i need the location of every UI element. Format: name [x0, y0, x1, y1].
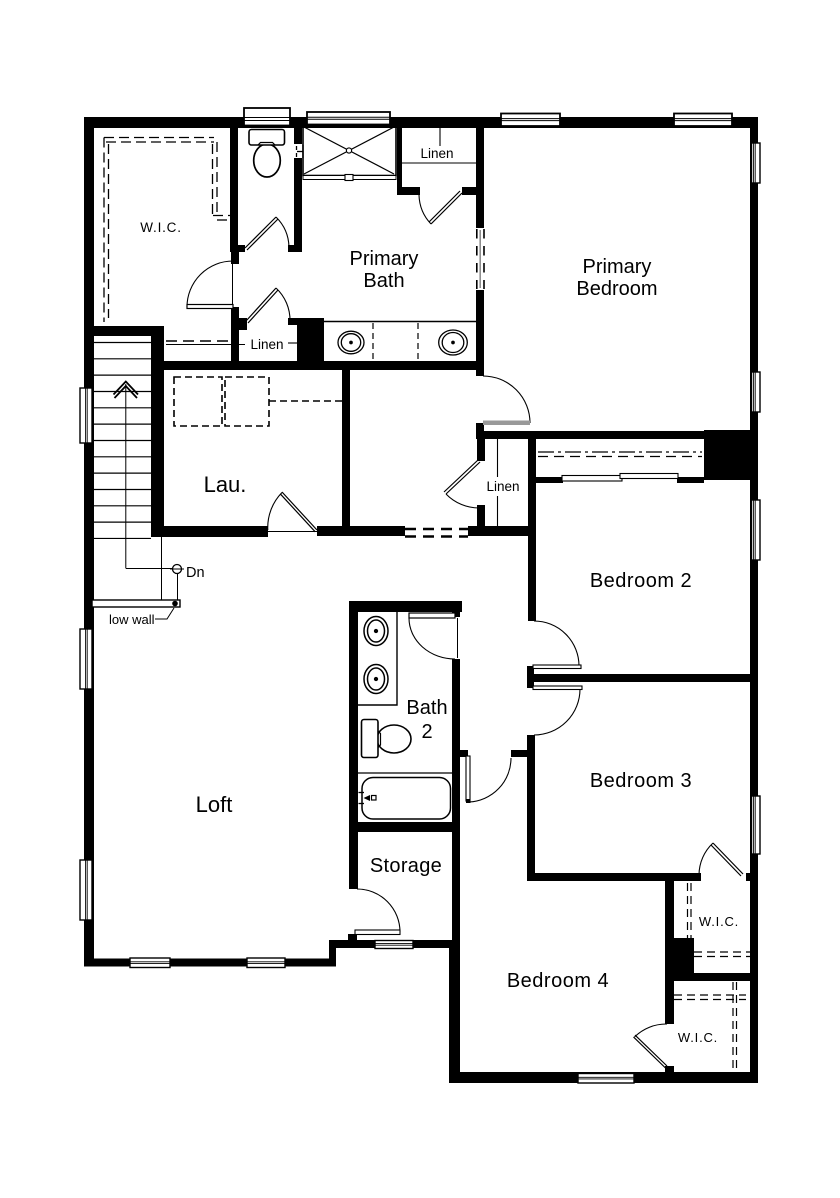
svg-text:Dn: Dn [186, 565, 205, 581]
svg-text:Bedroom 2: Bedroom 2 [590, 570, 692, 592]
svg-text:Primary: Primary [350, 248, 419, 270]
svg-text:Bath: Bath [363, 270, 404, 292]
svg-text:Bedroom 3: Bedroom 3 [590, 770, 692, 792]
svg-text:Bedroom: Bedroom [576, 278, 657, 300]
svg-text:Bath: Bath [406, 697, 447, 719]
svg-text:2: 2 [421, 721, 432, 743]
svg-text:Primary: Primary [583, 256, 652, 278]
svg-text:Bedroom 4: Bedroom 4 [507, 970, 609, 992]
svg-text:Loft: Loft [196, 792, 233, 817]
svg-text:W.I.C.: W.I.C. [140, 220, 182, 235]
svg-text:W.I.C.: W.I.C. [678, 1030, 718, 1045]
svg-text:Linen: Linen [486, 479, 519, 494]
svg-text:Lau.: Lau. [204, 472, 247, 497]
svg-text:W.I.C.: W.I.C. [699, 914, 739, 929]
svg-text:Storage: Storage [370, 855, 442, 877]
svg-text:Linen: Linen [420, 146, 453, 161]
svg-text:Linen: Linen [250, 337, 283, 352]
svg-text:low wall: low wall [109, 612, 155, 627]
